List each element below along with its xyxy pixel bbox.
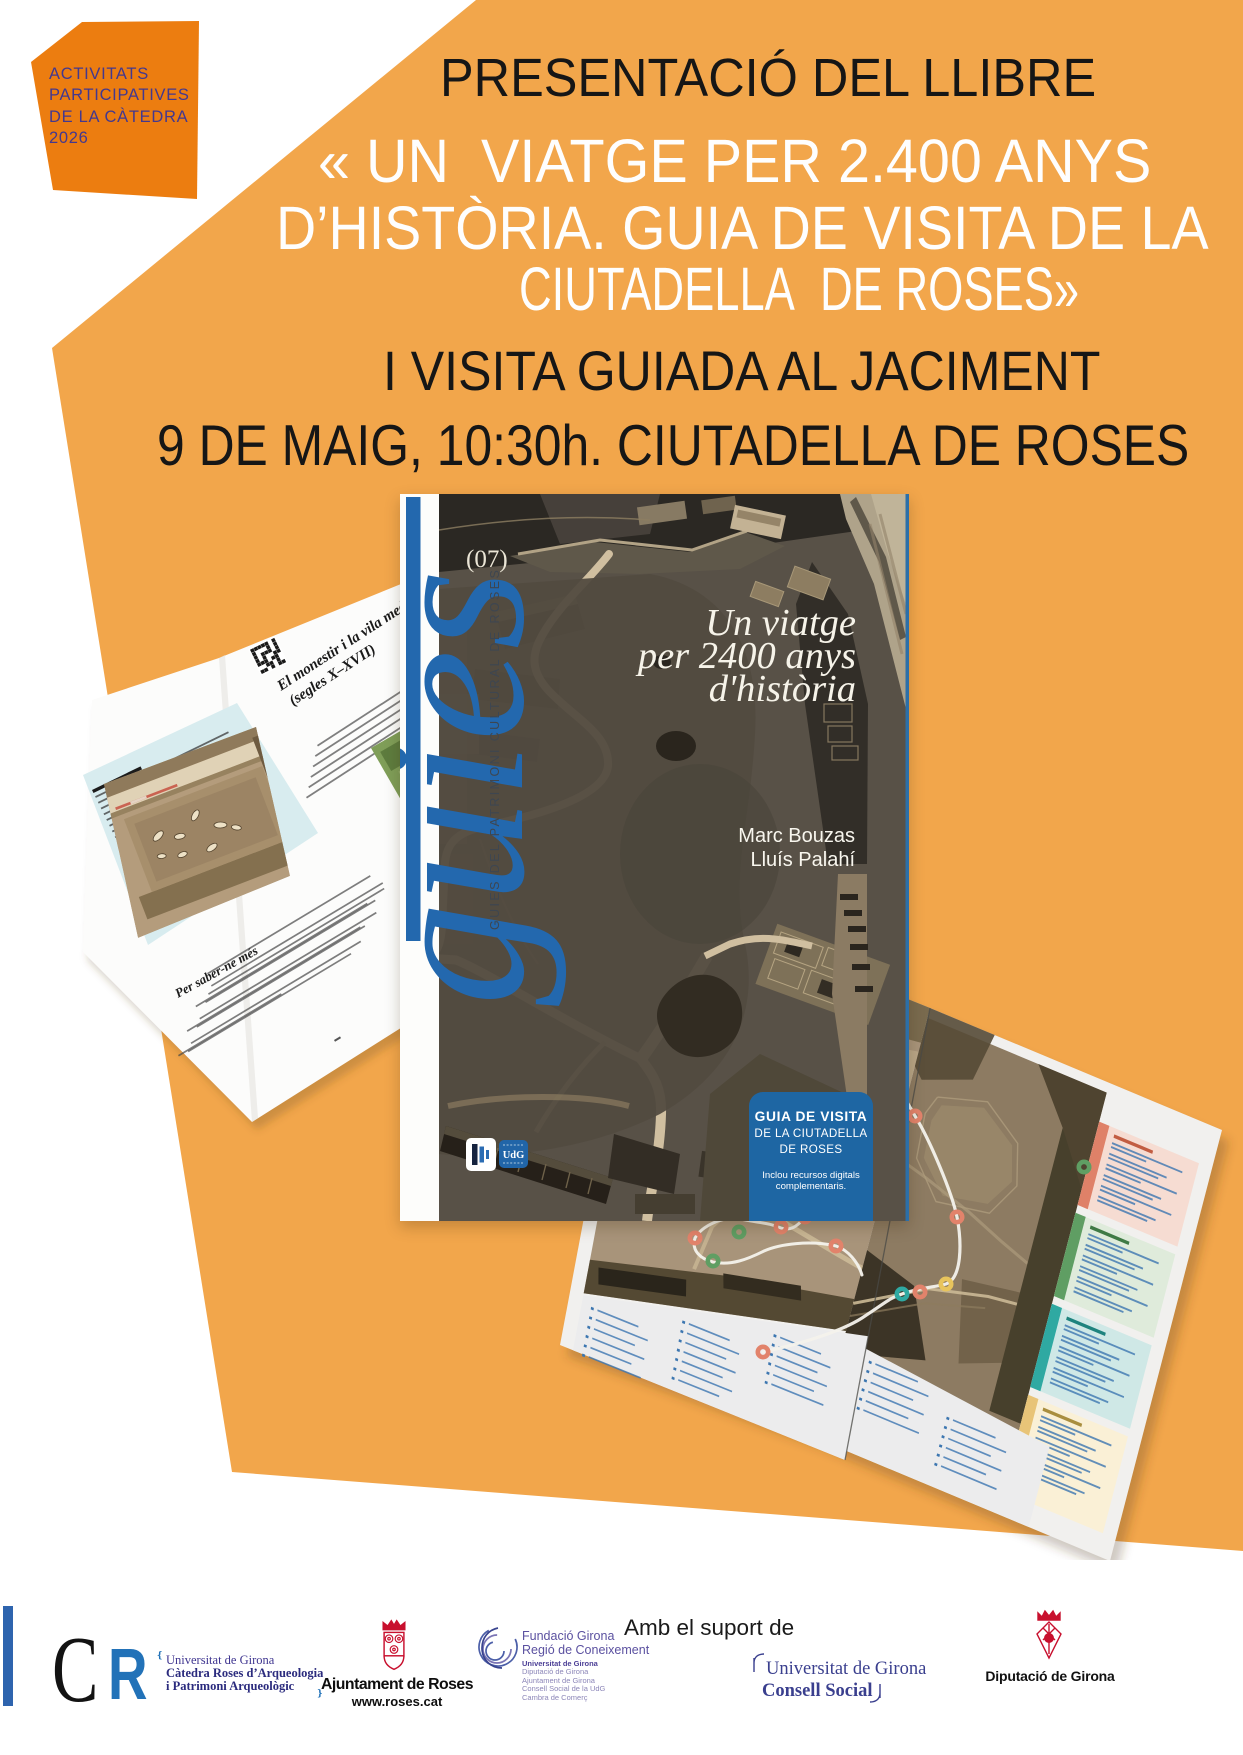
svg-text:Consell Social: Consell Social bbox=[762, 1681, 873, 1701]
svg-text:guies: guies bbox=[400, 569, 567, 1006]
svg-text:GUIES DEL PATRIMONI CULTURAL D: GUIES DEL PATRIMONI CULTURAL DE ROSES bbox=[488, 568, 502, 930]
svg-text:UdG: UdG bbox=[503, 1150, 525, 1161]
svg-text:Universitat de Girona: Universitat de Girona bbox=[766, 1659, 926, 1679]
